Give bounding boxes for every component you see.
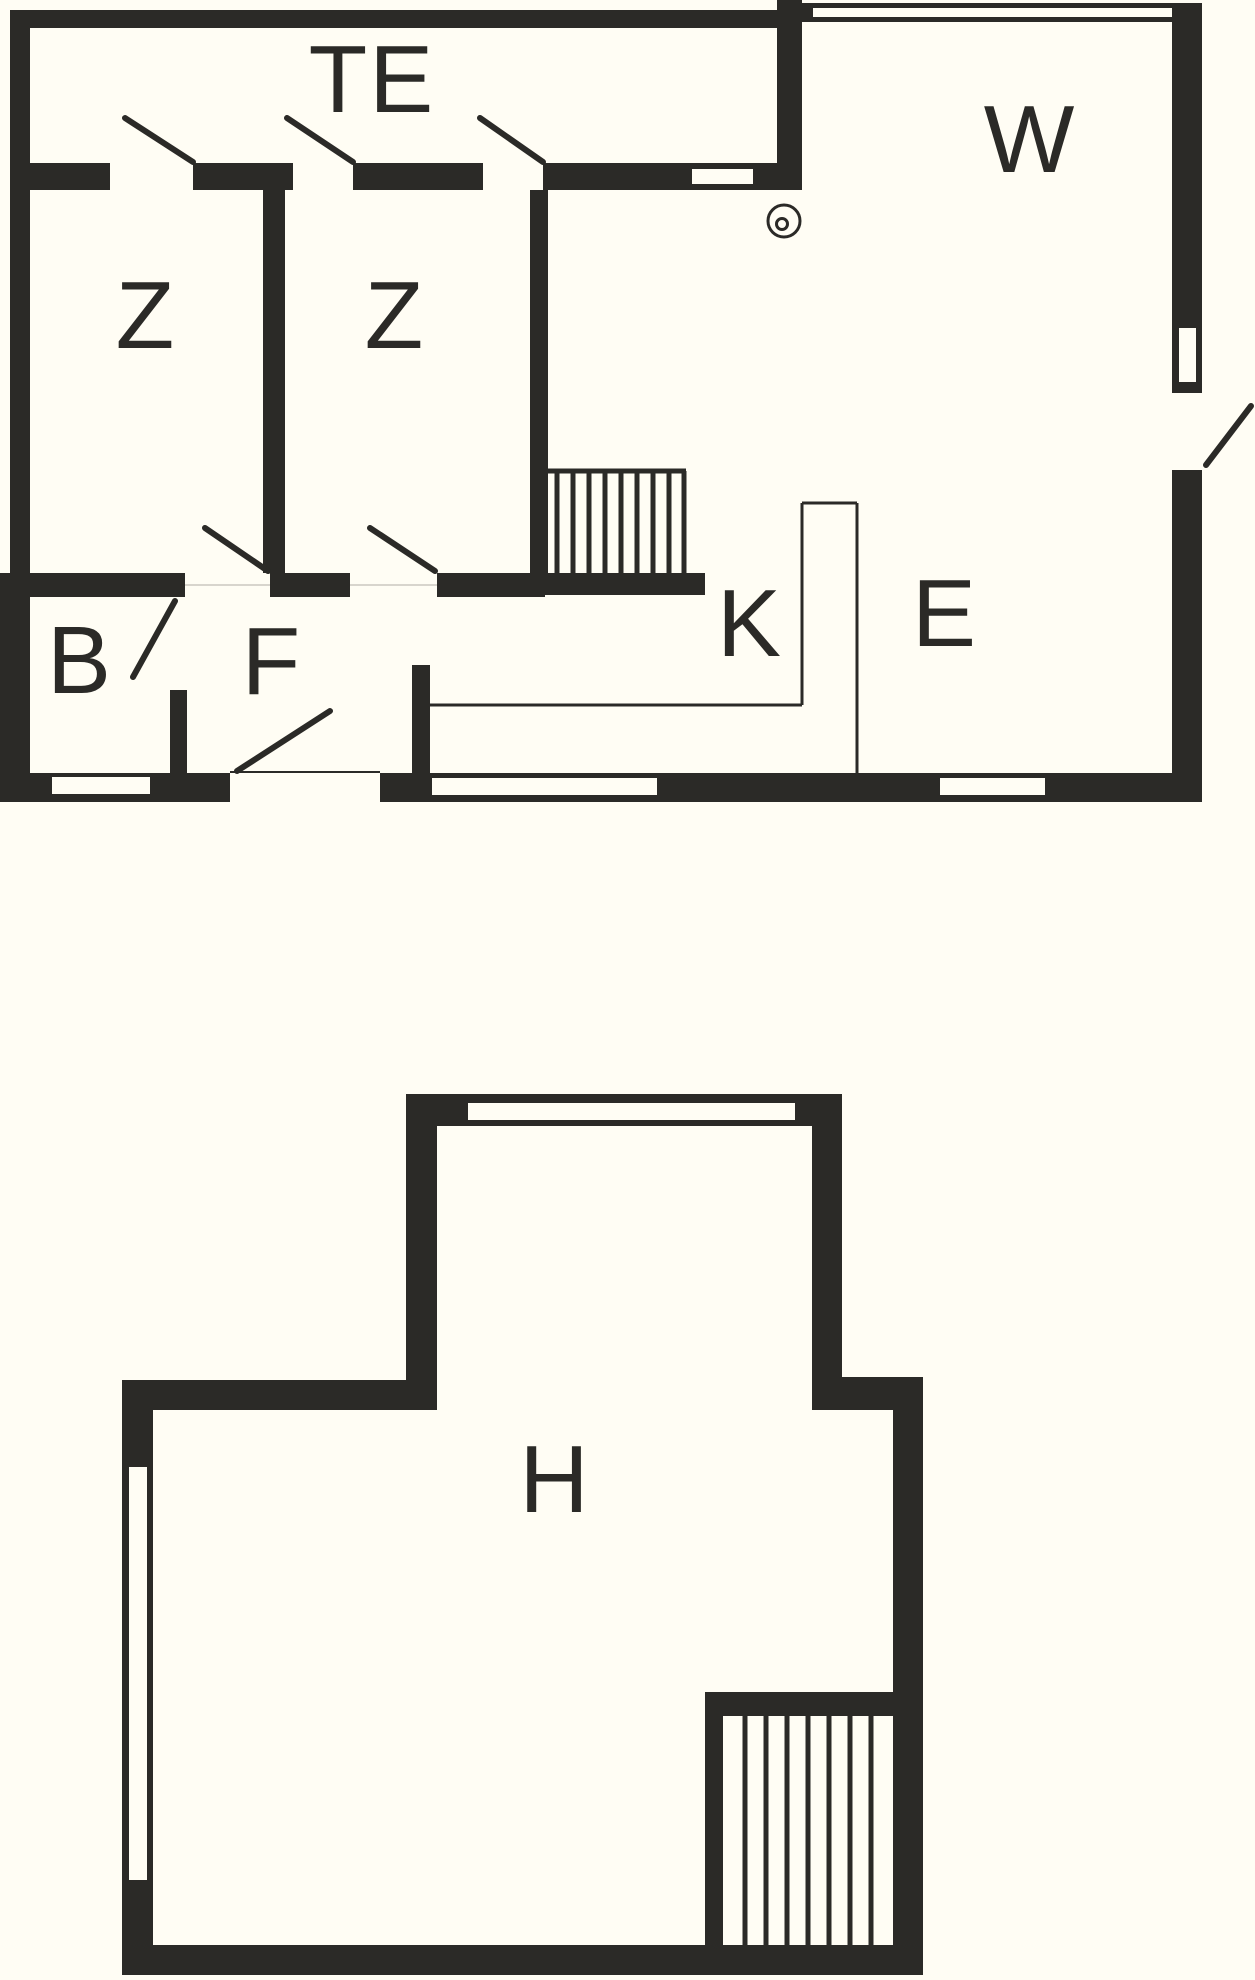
wall	[893, 1377, 923, 1975]
door-swing-icon	[125, 118, 193, 162]
wall	[530, 190, 548, 573]
wall	[10, 163, 110, 190]
wall	[705, 1692, 893, 1716]
room-label-bathroom: B	[47, 613, 113, 709]
wall	[543, 163, 802, 190]
window	[940, 778, 1045, 795]
door-swing-icon	[370, 528, 435, 571]
room-label-kitchen: K	[717, 576, 783, 672]
lower-floor-walls	[122, 1094, 923, 1975]
wall	[193, 163, 293, 190]
room-label-attic: H	[519, 1432, 590, 1528]
upper-stairs	[548, 471, 686, 573]
room-label-living: W	[984, 92, 1077, 188]
window	[52, 777, 150, 794]
room-label-terrace: TE	[309, 32, 436, 128]
kitchen-counter	[430, 503, 857, 773]
wall	[437, 573, 545, 597]
wall	[812, 1126, 842, 1410]
door-opening	[1172, 393, 1202, 470]
door-swing-icon	[237, 711, 330, 771]
wall	[122, 1945, 923, 1975]
door-opening	[230, 773, 380, 802]
wall	[353, 163, 483, 190]
room-label-bedroom-1: Z	[116, 268, 177, 364]
wall	[0, 573, 30, 802]
door-swing-icon	[133, 601, 175, 677]
thresholds	[185, 585, 437, 772]
wall	[412, 665, 430, 773]
window	[813, 8, 1172, 17]
wall	[170, 690, 187, 773]
wall	[10, 10, 30, 573]
room-label-bedroom-2: Z	[365, 268, 426, 364]
wall	[122, 1380, 437, 1410]
stove-icon	[768, 205, 800, 237]
room-label-entrance: E	[912, 566, 978, 662]
wall	[270, 573, 350, 597]
window	[432, 778, 657, 795]
window	[468, 1103, 795, 1120]
door-swing-icon	[1206, 406, 1251, 465]
wall	[406, 1094, 437, 1410]
wall	[777, 0, 802, 190]
door-swing-icon	[205, 528, 268, 571]
window	[129, 1467, 147, 1880]
window	[1179, 328, 1196, 382]
floorplan-drawing	[0, 0, 1255, 1980]
door-swing-icon	[480, 118, 543, 162]
lower-stairs	[745, 1716, 871, 1945]
lower-floor-windows	[129, 1103, 795, 1880]
wall	[705, 1692, 723, 1945]
wall	[0, 573, 185, 597]
wall	[545, 573, 705, 595]
window	[692, 169, 753, 184]
wall	[263, 190, 285, 573]
room-label-hall: F	[242, 614, 303, 710]
floorplan-canvas: TE W Z Z B F K E H	[0, 0, 1255, 1980]
